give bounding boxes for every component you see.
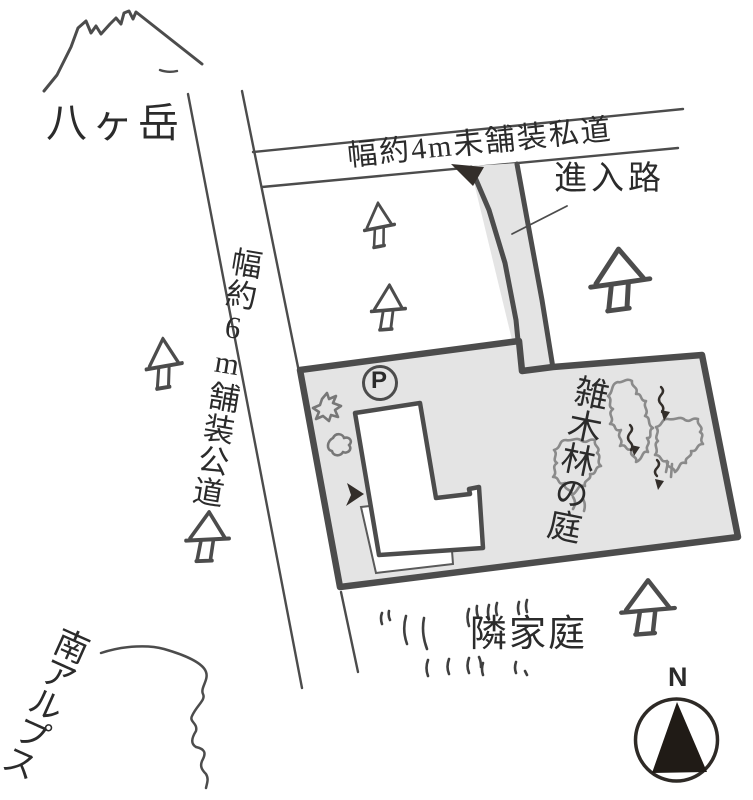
parking-letter: P [371,369,387,393]
mountain-ridge-sketch-nw [44,11,202,91]
label-approach-road: 進入路 [554,163,665,196]
public-road-right-edge-lower [341,592,358,672]
tree-icon-2 [370,284,406,331]
tree-icon-3 [589,248,651,312]
mountain-ridge-sketch-sw [101,646,208,788]
label-neighbor-garden: 隣家庭 [470,616,587,653]
tree-icon-5 [185,511,231,564]
tree-icon-6 [621,580,675,635]
tree-icon-4 [145,338,183,389]
label-mountain-yatsugatake: 八ヶ岳 [46,103,184,144]
site-plan-map: 八ヶ岳 幅約4m未舗装私道 進入路 幅約6m舗装公道 雑木林の庭 隣家庭 南アル… [0,0,753,800]
compass-north-letter: N [668,664,688,691]
compass-rose [636,699,718,781]
mountain-ridge-line [44,11,202,91]
mountain-ridge-tick [160,70,177,72]
public-road-right-edge-upper [242,91,299,372]
tree-icon-1 [363,202,396,248]
